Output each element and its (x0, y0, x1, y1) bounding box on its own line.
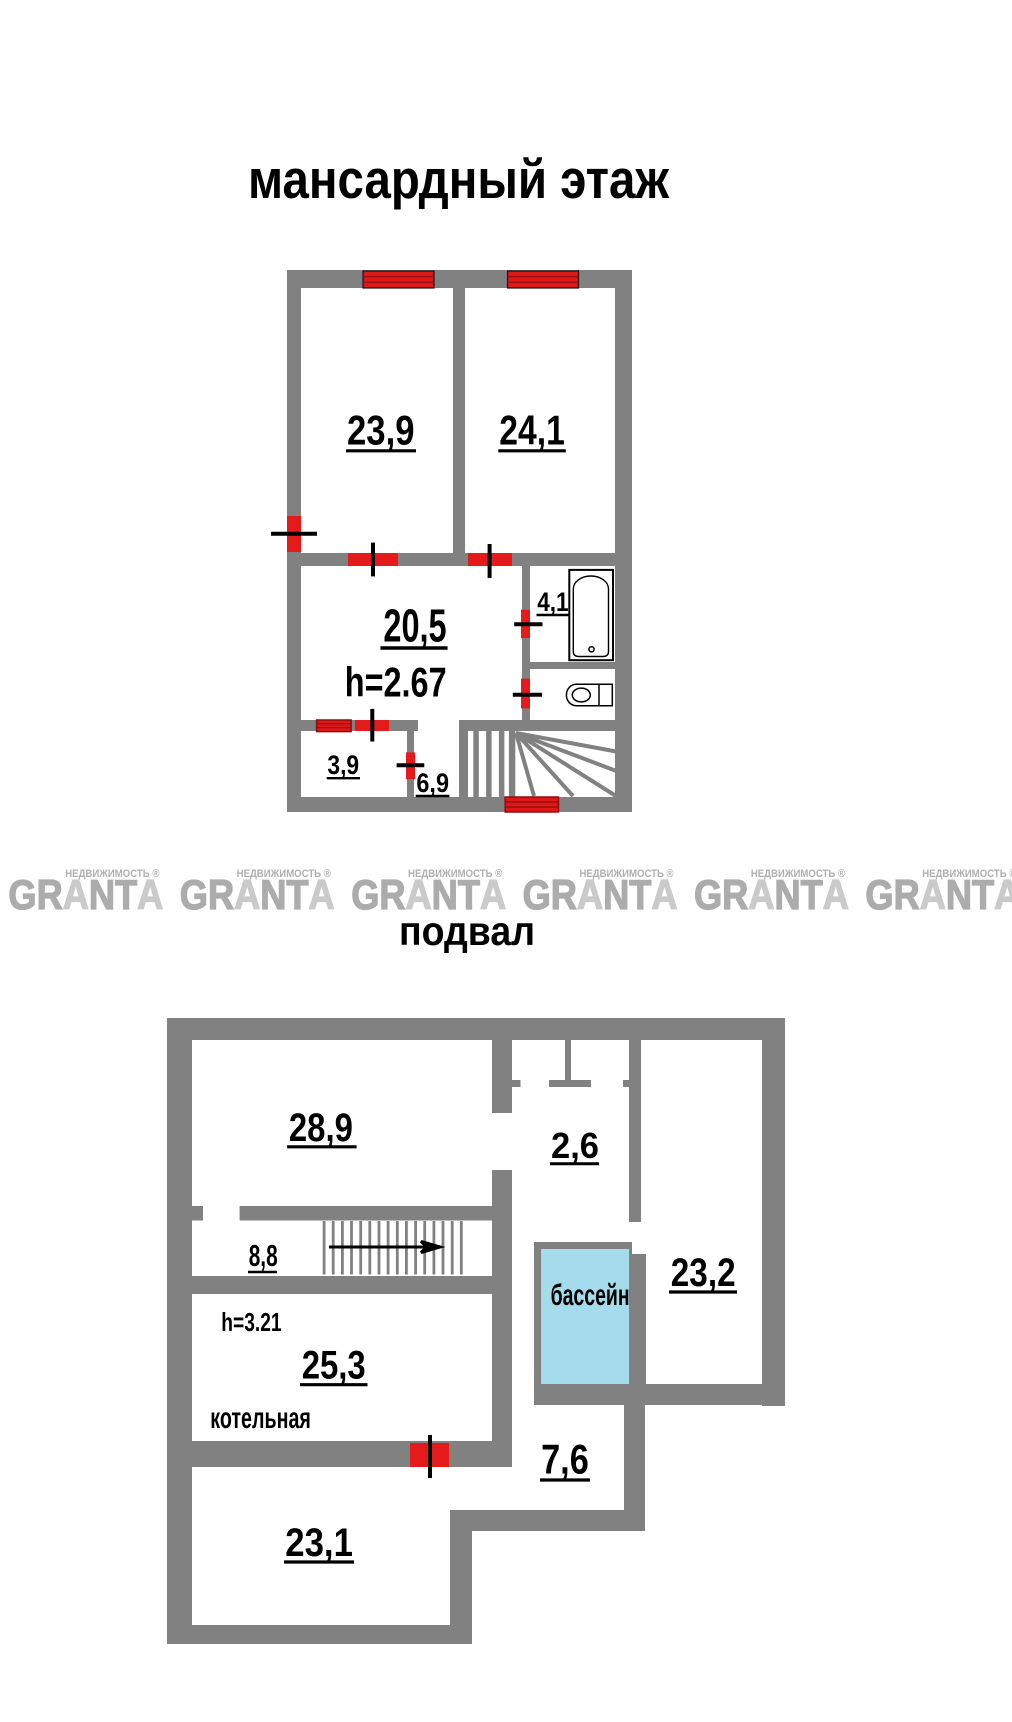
svg-text:3,9: 3,9 (327, 750, 359, 780)
svg-text:котельная: котельная (210, 1402, 311, 1435)
svg-text:6,9: 6,9 (416, 768, 449, 798)
svg-text:h=3.21: h=3.21 (221, 1307, 281, 1337)
svg-text:НЕДВИЖИМОСТЬ ®: НЕДВИЖИМОСТЬ ® (579, 868, 674, 880)
svg-text:4,1: 4,1 (537, 587, 568, 617)
svg-text:бассейн: бассейн (551, 1279, 630, 1312)
svg-text:20,5: 20,5 (383, 599, 446, 651)
svg-text:НЕДВИЖИМОСТЬ ®: НЕДВИЖИМОСТЬ ® (751, 868, 846, 880)
svg-text:мансардный этаж: мансардный этаж (248, 148, 670, 210)
svg-text:7,6: 7,6 (541, 1436, 589, 1483)
svg-text:НЕДВИЖИМОСТЬ ®: НЕДВИЖИМОСТЬ ® (237, 868, 332, 880)
svg-text:24,1: 24,1 (499, 407, 565, 454)
svg-text:НЕДВИЖИМОСТЬ ®: НЕДВИЖИМОСТЬ ® (922, 868, 1012, 880)
svg-text:28,9: 28,9 (289, 1106, 353, 1150)
svg-text:25,3: 25,3 (302, 1344, 366, 1388)
svg-text:НЕДВИЖИМОСТЬ ®: НЕДВИЖИМОСТЬ ® (408, 868, 503, 880)
svg-text:8,8: 8,8 (249, 1238, 278, 1273)
svg-text:2,6: 2,6 (551, 1125, 599, 1166)
svg-text:23,9: 23,9 (347, 407, 415, 454)
svg-text:h=2.67: h=2.67 (345, 659, 447, 706)
svg-text:НЕДВИЖИМОСТЬ ®: НЕДВИЖИМОСТЬ ® (65, 868, 160, 880)
svg-text:23,1: 23,1 (285, 1521, 353, 1565)
svg-text:23,2: 23,2 (671, 1251, 736, 1295)
